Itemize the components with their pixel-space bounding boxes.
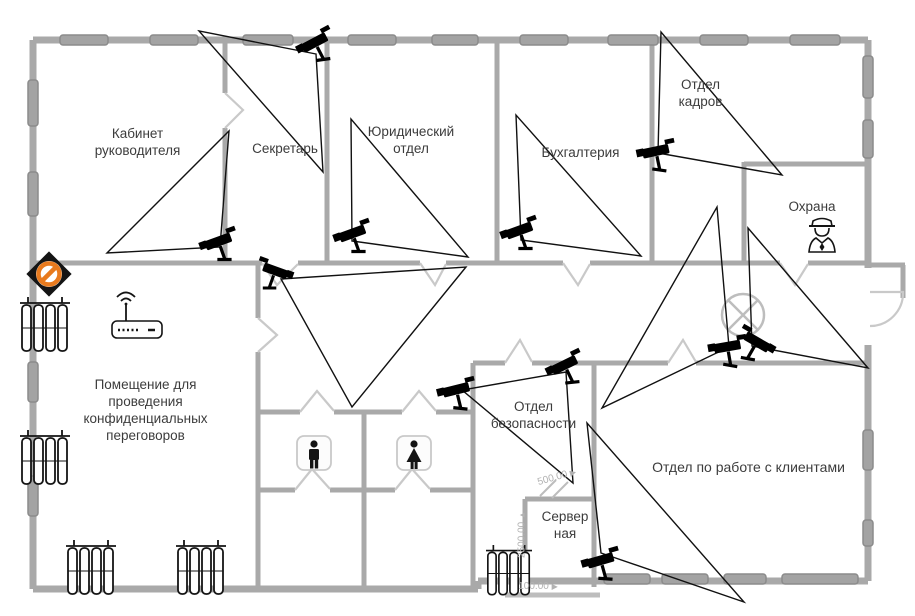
room-label-hr: Отдел кадров <box>663 77 738 111</box>
cctv-camera-icon <box>198 226 236 260</box>
room-label-server-room: Сервер ная <box>537 509 593 543</box>
floor-plan-page: Кабинет руководителя Секретарь Юридическ… <box>0 0 915 616</box>
dimension-vertical: 2500.00 ▲ <box>517 500 528 570</box>
room-label-legal: Юридический отдел <box>352 124 470 158</box>
radiators <box>20 297 532 595</box>
arrow-up-icon: ▲ <box>518 511 527 519</box>
room-label-director: Кабинет руководителя <box>70 126 205 160</box>
cctv-camera-icon <box>499 215 537 249</box>
camera-fov-triangle <box>602 207 729 408</box>
cctv-camera-icon <box>543 348 584 385</box>
arrow-right-icon: ▶ <box>552 582 558 591</box>
camera-fov-triangle <box>516 115 641 256</box>
male-wc-icon <box>297 436 331 470</box>
camera-fov-triangles <box>107 31 868 602</box>
floor-plan-drawing <box>0 0 915 616</box>
room-label-confidential: Помещение для проведения конфиденциальны… <box>64 377 227 445</box>
female-wc-icon <box>397 436 431 470</box>
camera-fov-triangle <box>281 267 466 407</box>
room-label-security-dept: Отдел безопасности <box>487 399 580 433</box>
wifi-router-icon <box>112 293 162 339</box>
radiator-icon <box>20 430 70 484</box>
radiator-icon <box>20 297 70 351</box>
room-label-secretary: Секретарь <box>240 141 330 158</box>
room-label-accounting: Бухгалтерия <box>528 145 633 162</box>
cctv-camera-icon <box>434 372 475 409</box>
dimension-horizontal-value: 100.00 <box>518 581 549 592</box>
dimension-vertical-value: 2500.00 <box>517 522 528 558</box>
ceiling-light-icon <box>722 294 764 336</box>
entrance-door-arc <box>870 292 903 326</box>
cctv-camera-icon <box>332 218 370 252</box>
arrow-right-icon: ▶ <box>569 467 577 477</box>
dimension-horizontal: 100.00 ▶ <box>508 581 568 592</box>
room-label-guard: Охрана <box>780 199 844 216</box>
windows <box>28 35 873 584</box>
security-guard-icon <box>809 219 835 253</box>
room-label-clients: Отдел по работе с клиентами <box>626 459 871 477</box>
